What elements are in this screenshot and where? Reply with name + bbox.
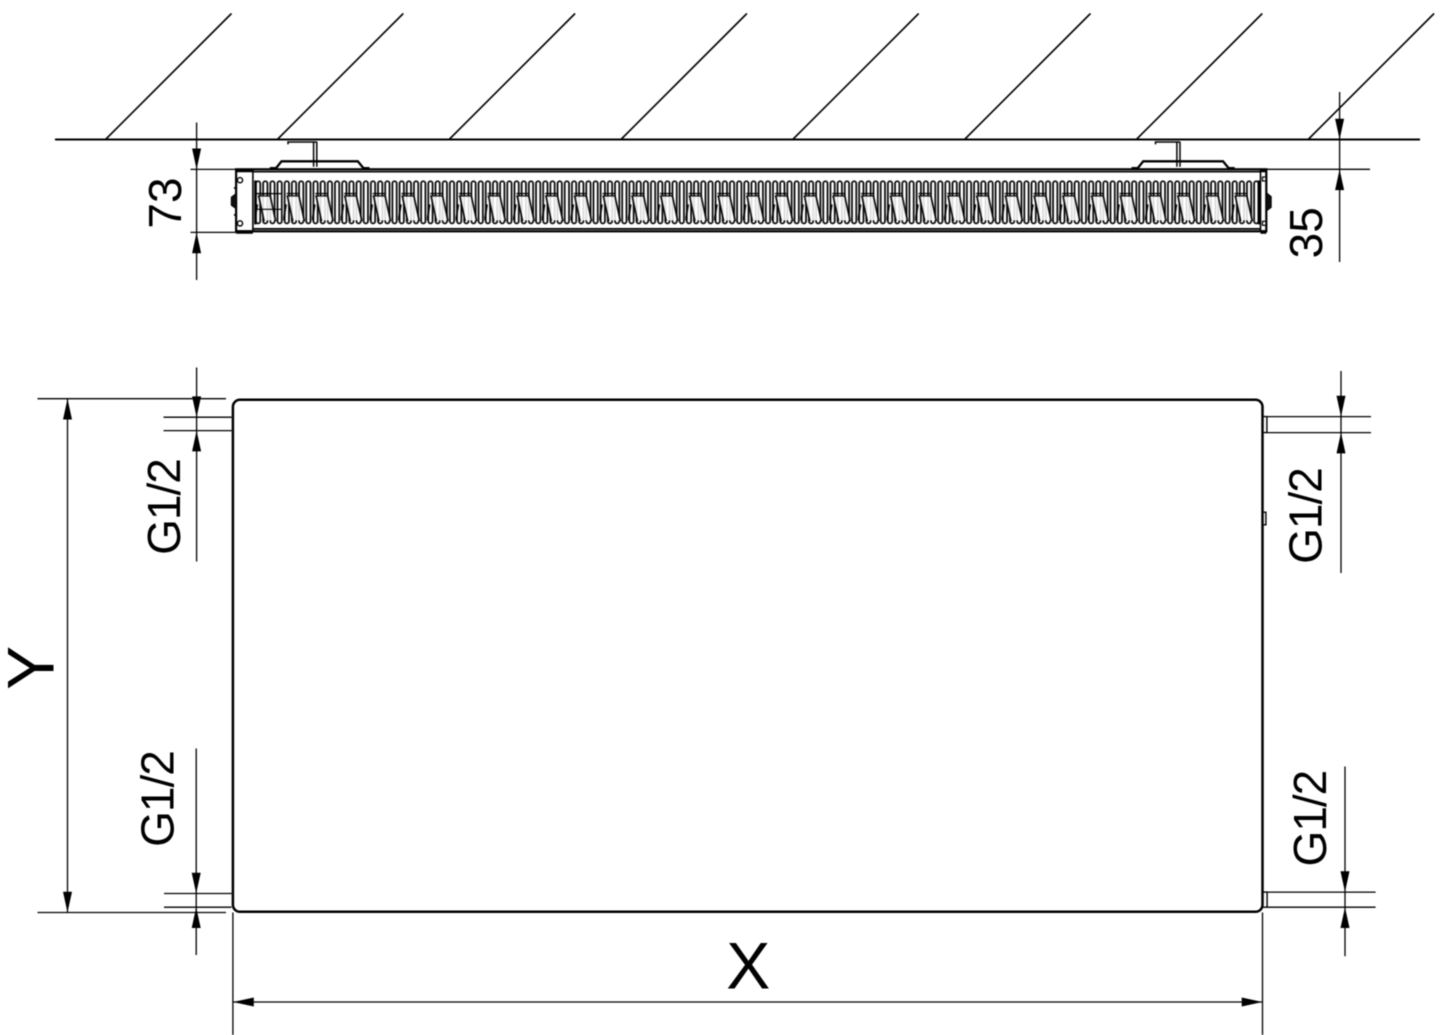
svg-text:G1/2: G1/2 [138,459,190,555]
svg-text:73: 73 [139,177,191,228]
svg-text:35: 35 [1280,207,1332,258]
svg-text:G1/2: G1/2 [1284,771,1336,867]
svg-text:G1/2: G1/2 [1280,468,1332,564]
svg-text:X: X [726,929,770,1003]
svg-text:G1/2: G1/2 [132,751,184,847]
svg-text:Y: Y [0,646,68,690]
